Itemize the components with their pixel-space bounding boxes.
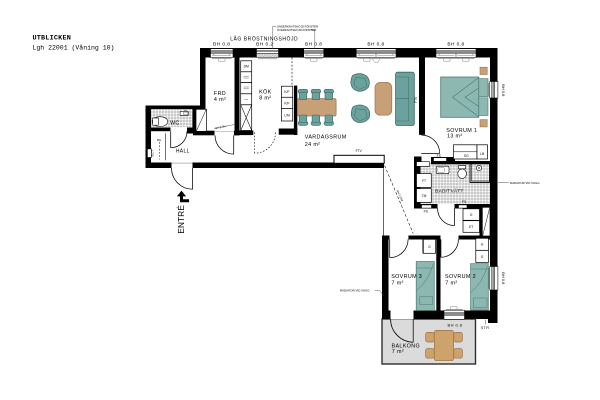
svg-text:13 m²: 13 m² bbox=[447, 134, 463, 140]
svg-text:7 m²: 7 m² bbox=[445, 280, 457, 286]
svg-text:7 m²: 7 m² bbox=[392, 280, 404, 286]
svg-text:BH 0.8: BH 0.8 bbox=[305, 42, 322, 48]
svg-text:FTV: FTV bbox=[414, 96, 418, 103]
svg-text:BH 0.8: BH 0.8 bbox=[447, 42, 464, 48]
svg-text:LÅG BRÖSTNINGSHÖJD: LÅG BRÖSTNINGSHÖJD bbox=[230, 35, 298, 42]
svg-text:SG: SG bbox=[464, 154, 469, 158]
svg-text:BH 0.8: BH 0.8 bbox=[213, 42, 230, 48]
svg-text:Lgh 22001 (Våning 10): Lgh 22001 (Våning 10) bbox=[33, 43, 115, 51]
svg-text:VARDAGSRUM: VARDAGSRUM bbox=[305, 135, 347, 141]
svg-text:SOVRUM 2: SOVRUM 2 bbox=[445, 274, 476, 280]
svg-text:FT: FT bbox=[422, 179, 426, 183]
svg-text:BAD/TVÄTT: BAD/TVÄTT bbox=[435, 187, 463, 193]
svg-text:UTBLICKEN: UTBLICKEN bbox=[33, 35, 72, 43]
svg-text:RADIATOR VID VÄGG: RADIATOR VID VÄGG bbox=[510, 181, 540, 185]
svg-text:BH 2.15M: BH 2.15M bbox=[396, 189, 405, 202]
svg-text:L/M: L/M bbox=[284, 113, 290, 117]
svg-text:BH 0.8: BH 0.8 bbox=[448, 322, 463, 327]
svg-text:KÖK: KÖK bbox=[259, 88, 271, 95]
svg-text:G: G bbox=[470, 213, 473, 217]
svg-text:7 m²: 7 m² bbox=[392, 349, 404, 355]
svg-text:FTV: FTV bbox=[356, 149, 363, 153]
svg-text:24 m²: 24 m² bbox=[305, 142, 321, 148]
svg-text:K/F: K/F bbox=[284, 101, 289, 105]
svg-text:ELCT: ELCT bbox=[151, 149, 155, 156]
svg-text:SOVRUM 3: SOVRUM 3 bbox=[391, 274, 422, 280]
svg-text:BH 0.8: BH 0.8 bbox=[501, 272, 506, 285]
svg-text:ENTRÉ: ENTRÉ bbox=[176, 205, 186, 234]
svg-text:BH 0.8: BH 0.8 bbox=[501, 84, 506, 97]
svg-text:G: G bbox=[481, 243, 484, 247]
svg-text:TM: TM bbox=[422, 194, 427, 198]
svg-text:G: G bbox=[428, 245, 431, 249]
svg-text:WC: WC bbox=[170, 121, 179, 127]
svg-text:G: G bbox=[481, 255, 484, 259]
svg-text:ÖVERKANTSHÖJD FÖNSTER: ÖVERKANTSHÖJD FÖNSTER bbox=[277, 28, 316, 32]
svg-text:BH 0.8: BH 0.8 bbox=[367, 42, 384, 48]
svg-text:RADIATOR VID VÄGG: RADIATOR VID VÄGG bbox=[340, 288, 370, 292]
svg-text:K/F: K/F bbox=[284, 90, 289, 94]
svg-text:8 m²: 8 m² bbox=[259, 95, 271, 101]
svg-text:FS: FS bbox=[424, 210, 429, 214]
svg-text:ET: ET bbox=[469, 225, 473, 229]
svg-text:4 m²: 4 m² bbox=[214, 97, 226, 103]
svg-text:STR: STR bbox=[481, 326, 490, 330]
svg-text:DM: DM bbox=[244, 65, 249, 69]
svg-text:BH 0.2: BH 0.2 bbox=[256, 42, 273, 48]
svg-text:HALL: HALL bbox=[176, 148, 190, 154]
svg-text:BG: BG bbox=[157, 138, 161, 142]
